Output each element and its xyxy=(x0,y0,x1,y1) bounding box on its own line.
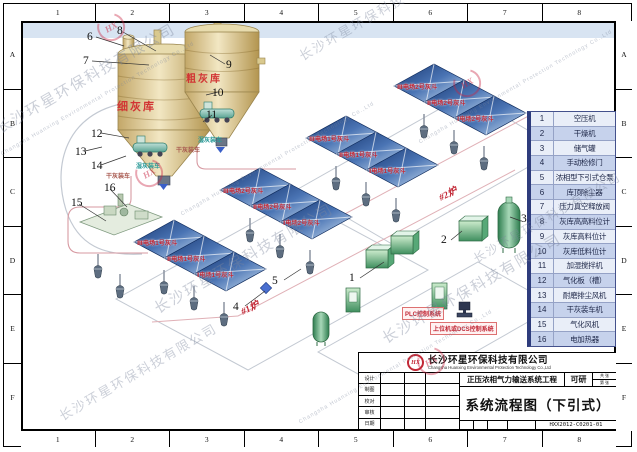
hopper-panel-label: Ⅰ电场2号灰斗 xyxy=(457,114,494,123)
legend-item-number: 1 xyxy=(531,112,554,126)
ruler-column-label: 4 xyxy=(245,431,320,447)
ruler-row-label: D xyxy=(616,227,632,296)
ruler-column-label: 8 xyxy=(543,4,617,21)
hopper-panel-label: Ⅰ电场1号灰斗 xyxy=(369,166,406,175)
ruler-row-label: B xyxy=(4,90,21,159)
ruler-row-label: B xyxy=(616,90,632,159)
hopper-panel-label: Ⅲ电场2号灰斗 xyxy=(223,186,263,195)
legend-item-number: 4 xyxy=(531,156,554,170)
legend-row: 7压力真空释放阀 xyxy=(531,200,615,215)
drawing-number-row: HXX2012-C0201-01 xyxy=(460,420,616,429)
ruler-column-label: 6 xyxy=(394,4,469,21)
signature-field-label: 设计 xyxy=(359,373,381,383)
legend-row: 16电加热器 xyxy=(531,332,615,346)
legend-item-name: 干燥机 xyxy=(554,127,615,141)
plc-control-label: PLC控制系统 xyxy=(402,307,444,320)
legend-item-name: 灰库高料位计 xyxy=(554,230,615,244)
ruler-column-label: 4 xyxy=(245,4,320,21)
equipment-callout-number: 13 xyxy=(75,146,87,158)
legend-row: 4手动检修门 xyxy=(531,156,615,171)
legend-item-name: 储气罐 xyxy=(554,141,615,155)
signature-field-value xyxy=(405,396,426,406)
legend-item-number: 3 xyxy=(531,141,554,155)
signature-field-value xyxy=(381,396,405,406)
ruler-row-label: C xyxy=(4,158,21,227)
legend-item-number: 7 xyxy=(531,200,554,214)
hopper-panel-label: Ⅱ电场1号灰斗 xyxy=(167,254,205,263)
legend-item-number: 6 xyxy=(531,185,554,199)
equipment-callout-number: 6 xyxy=(87,31,93,43)
drawing-number: HXX2012-C0201-01 xyxy=(536,421,616,429)
ruler-column-label: 7 xyxy=(468,4,543,21)
title-block-signature-grid: 设计制图校对审核日期 xyxy=(359,373,460,429)
legend-item-name: 灰库低料位计 xyxy=(554,244,615,258)
fine-silo-label: 细灰库 xyxy=(117,98,156,114)
company-name-en: Changsha Huanxing Environmental Protecti… xyxy=(428,365,551,370)
drawing-sheet: 12345678 12345678 ABCDEF ABCDEF xyxy=(0,0,637,452)
legend-item-name: 手动检修门 xyxy=(554,156,615,170)
signature-field-value xyxy=(381,407,405,417)
wet-loading-label: 湿灰装车 xyxy=(198,135,222,144)
hopper-panel-label: Ⅱ电场2号灰斗 xyxy=(253,202,291,211)
legend-item-number: 9 xyxy=(531,230,554,244)
legend-table: 1空压机2干燥机3储气罐4手动检修门5浓相型下引式仓泵6库顶除尘器7压力真空释放… xyxy=(527,111,616,347)
grid-ruler-right: ABCDEF xyxy=(616,21,632,431)
legend-row: 15气化风机 xyxy=(531,318,615,333)
dry-loading-label: 干灰装车 xyxy=(176,145,200,154)
ruler-column-label: 7 xyxy=(468,431,543,447)
ruler-column-label: 1 xyxy=(21,431,96,447)
legend-item-number: 5 xyxy=(531,171,554,185)
title-block-company-row: HX 长沙环星环保科技有限公司 Changsha Huanxing Enviro… xyxy=(359,353,616,373)
signature-field-value xyxy=(405,373,426,383)
legend-item-number: 2 xyxy=(531,127,554,141)
signature-field-label: 审核 xyxy=(359,407,381,417)
legend-item-name: 加湿搅拌机 xyxy=(554,259,615,273)
sheet-count: 共 张 第 张 xyxy=(593,373,616,386)
ruler-row-label: E xyxy=(4,295,21,364)
design-stage: 可研 xyxy=(565,373,593,386)
ruler-column-label: 5 xyxy=(319,431,394,447)
hopper-panel-label: Ⅱ电场2号灰斗 xyxy=(427,98,465,107)
ruler-row-label: F xyxy=(4,364,21,432)
signature-row: 审核 xyxy=(359,407,459,418)
dry-loading-label: 干灰装车 xyxy=(106,171,130,180)
grid-ruler-bottom: 12345678 xyxy=(21,431,616,447)
hopper-panel-label: Ⅲ电场2号灰斗 xyxy=(397,82,437,91)
ruler-row-label: A xyxy=(4,21,21,90)
legend-item-number: 13 xyxy=(531,288,554,302)
equipment-callout-number: 10 xyxy=(212,87,224,99)
legend-row: 5浓相型下引式仓泵 xyxy=(531,171,615,186)
legend-row: 11加湿搅拌机 xyxy=(531,259,615,274)
equipment-callout-number: 2 xyxy=(441,234,447,246)
signature-field-value xyxy=(405,407,426,417)
equipment-callout-number: 4 xyxy=(233,301,239,313)
legend-item-number: 11 xyxy=(531,259,554,273)
signature-field-value xyxy=(426,396,459,406)
legend-item-number: 12 xyxy=(531,274,554,288)
legend-row: 10灰库低料位计 xyxy=(531,244,615,259)
signature-field-label: 日期 xyxy=(359,419,381,429)
signature-field-label: 制图 xyxy=(359,384,381,394)
legend-row: 9灰库高料位计 xyxy=(531,230,615,245)
ruler-column-label: 8 xyxy=(543,431,617,447)
ruler-column-label: 2 xyxy=(96,431,171,447)
legend-item-name: 干灰装车机 xyxy=(554,303,615,317)
company-name-cn: 长沙环星环保科技有限公司 xyxy=(428,356,551,365)
equipment-callout-number: 15 xyxy=(71,197,83,209)
signature-field-value xyxy=(426,384,459,394)
legend-row: 3储气罐 xyxy=(531,141,615,156)
equipment-callout-number: 11 xyxy=(206,109,217,121)
signature-row: 校对 xyxy=(359,396,459,407)
signature-field-value xyxy=(426,419,459,429)
legend-row: 2干燥机 xyxy=(531,127,615,142)
ruler-row-label: E xyxy=(616,295,632,364)
legend-item-name: 库顶除尘器 xyxy=(554,185,615,199)
legend-row: 8灰库高高料位计 xyxy=(531,215,615,230)
legend-row: 13耐磨排尘风机 xyxy=(531,288,615,303)
ruler-column-label: 5 xyxy=(319,4,394,21)
legend-item-name: 气化板（槽） xyxy=(554,274,615,288)
legend-row: 6库顶除尘器 xyxy=(531,185,615,200)
grid-ruler-top: 12345678 xyxy=(21,4,616,21)
signature-field-value xyxy=(426,373,459,383)
boiler2-label: #2炉 xyxy=(436,182,459,203)
ruler-row-label: C xyxy=(616,158,632,227)
boiler1-label: #1炉 xyxy=(238,296,261,317)
equipment-callout-number: 14 xyxy=(91,160,103,172)
legend-item-name: 耐磨排尘风机 xyxy=(554,288,615,302)
ruler-row-label: A xyxy=(616,21,632,90)
equipment-callout-number: 5 xyxy=(272,275,278,287)
coarse-silo-label: 粗灰库 xyxy=(186,70,222,85)
legend-item-number: 14 xyxy=(531,303,554,317)
signature-row: 日期 xyxy=(359,419,459,429)
legend-item-name: 灰库高高料位计 xyxy=(554,215,615,229)
equipment-callout-number: 3 xyxy=(521,213,527,225)
hopper-panel-label: Ⅰ电场2号灰斗 xyxy=(283,218,320,227)
equipment-callout-number: 7 xyxy=(83,55,89,67)
wet-loading-label: 湿灰装车 xyxy=(136,161,160,170)
ruler-row-label: D xyxy=(4,227,21,296)
hopper-panel-label: Ⅲ电场1号灰斗 xyxy=(309,134,349,143)
title-block: HX 长沙环星环保科技有限公司 Changsha Huanxing Enviro… xyxy=(358,352,616,430)
sheet-number: 第 张 xyxy=(593,380,616,386)
ruler-column-label: 3 xyxy=(170,4,245,21)
legend-item-number: 10 xyxy=(531,244,554,258)
company-logo: HX xyxy=(407,354,424,371)
hopper-panel-label: Ⅲ电场1号灰斗 xyxy=(137,238,177,247)
signature-field-label: 校对 xyxy=(359,396,381,406)
equipment-callout-number: 1 xyxy=(349,272,355,284)
ruler-row-label: F xyxy=(616,364,632,432)
signature-field-value xyxy=(405,384,426,394)
legend-item-number: 16 xyxy=(531,332,554,346)
project-name: 正压浓相气力输送系统工程 xyxy=(460,373,565,386)
ruler-column-label: 3 xyxy=(170,431,245,447)
legend-item-name: 浓相型下引式仓泵 xyxy=(554,171,615,185)
grid-ruler-left: ABCDEF xyxy=(4,21,21,431)
signature-field-value xyxy=(405,419,426,429)
hopper-panel-label: Ⅱ电场1号灰斗 xyxy=(339,150,377,159)
equipment-callout-number: 12 xyxy=(91,128,103,140)
ruler-column-label: 6 xyxy=(394,431,469,447)
equipment-callout-number: 9 xyxy=(226,59,232,71)
signature-field-value xyxy=(426,407,459,417)
legend-row: 1空压机 xyxy=(531,112,615,127)
dcs-control-label: 上位机或DCS控制系统 xyxy=(430,322,497,335)
signature-row: 制图 xyxy=(359,384,459,395)
equipment-callout-number: 16 xyxy=(104,182,116,194)
hopper-panel-label: Ⅰ电场1号灰斗 xyxy=(197,270,234,279)
signature-field-value xyxy=(381,373,405,383)
sheet-total: 共 张 xyxy=(593,373,616,380)
ruler-column-label: 1 xyxy=(21,4,96,21)
legend-item-name: 电加热器 xyxy=(554,332,615,346)
equipment-callout-number: 8 xyxy=(117,25,123,37)
legend-item-name: 压力真空释放阀 xyxy=(554,200,615,214)
signature-field-value xyxy=(381,419,405,429)
legend-row: 12气化板（槽） xyxy=(531,274,615,289)
legend-item-number: 8 xyxy=(531,215,554,229)
ruler-column-label: 2 xyxy=(96,4,171,21)
legend-row: 14干灰装车机 xyxy=(531,303,615,318)
signature-field-value xyxy=(381,384,405,394)
legend-item-name: 气化风机 xyxy=(554,318,615,332)
signature-row: 设计 xyxy=(359,373,459,384)
legend-item-number: 15 xyxy=(531,318,554,332)
legend-item-name: 空压机 xyxy=(554,112,615,126)
drawing-title: 系统流程图（下引式） xyxy=(460,387,616,420)
